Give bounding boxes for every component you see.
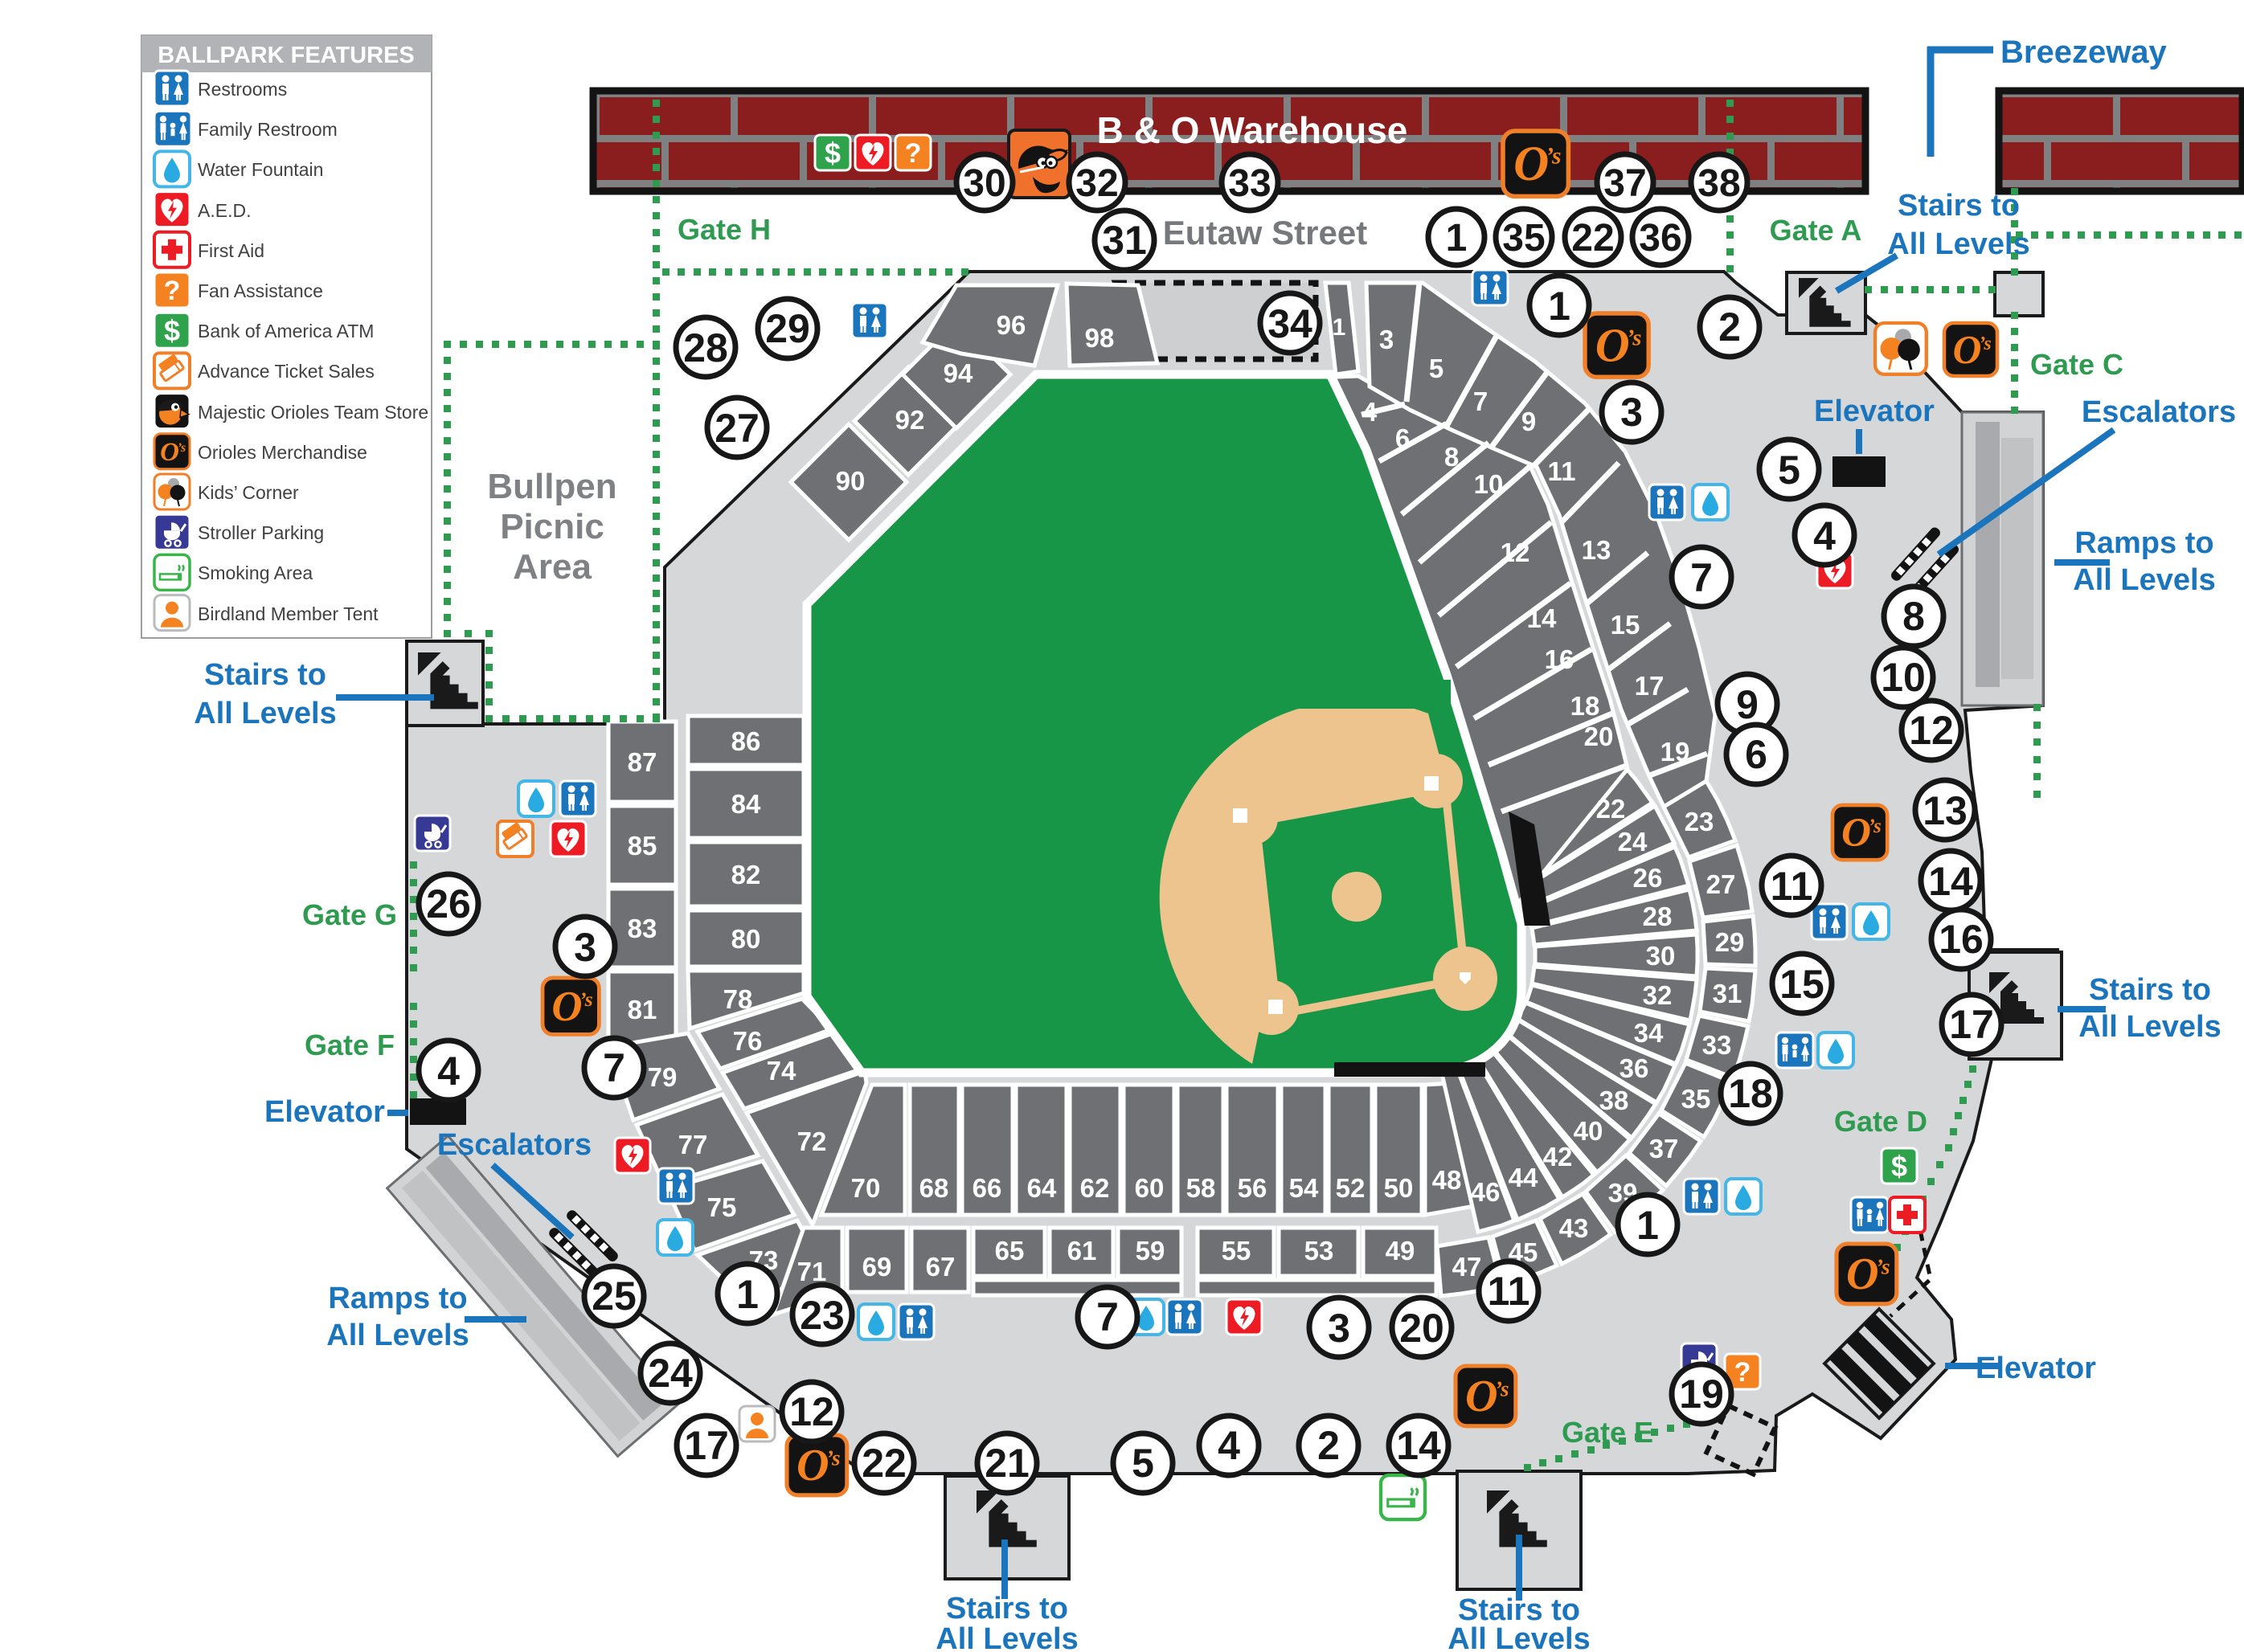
svg-text:All Levels: All Levels (2078, 1010, 2221, 1044)
svg-text:Kids’ Corner: Kids’ Corner (198, 482, 299, 503)
svg-text:31: 31 (1713, 979, 1742, 1008)
svg-text:8: 8 (1444, 442, 1459, 472)
svg-text:22: 22 (862, 1441, 907, 1486)
svg-text:84: 84 (731, 789, 761, 819)
svg-text:71: 71 (797, 1257, 827, 1286)
svg-text:15: 15 (1611, 610, 1640, 640)
svg-text:9: 9 (1736, 682, 1759, 727)
svg-text:80: 80 (731, 924, 761, 954)
svg-text:30: 30 (963, 162, 1005, 205)
svg-text:20: 20 (1399, 1306, 1444, 1351)
svg-text:1: 1 (1636, 1203, 1659, 1248)
svg-text:7: 7 (603, 1045, 625, 1090)
svg-text:2: 2 (1718, 305, 1741, 350)
svg-text:32: 32 (1643, 980, 1673, 1010)
svg-text:1: 1 (1333, 314, 1346, 341)
svg-text:22: 22 (1596, 794, 1626, 824)
svg-text:83: 83 (628, 914, 657, 943)
svg-text:7: 7 (1473, 386, 1488, 416)
svg-text:42: 42 (1543, 1142, 1573, 1172)
svg-text:3: 3 (1328, 1306, 1350, 1351)
svg-text:18: 18 (1570, 691, 1600, 721)
svg-text:2: 2 (1317, 1423, 1340, 1468)
svg-text:24: 24 (648, 1351, 693, 1396)
svg-text:Majestic Orioles Team Store: Majestic Orioles Team Store (198, 402, 428, 423)
svg-text:44: 44 (1509, 1163, 1538, 1192)
svg-text:Elevator: Elevator (264, 1095, 385, 1129)
svg-text:6: 6 (1745, 732, 1767, 777)
svg-text:Gate E: Gate E (1562, 1416, 1653, 1449)
svg-text:3: 3 (1620, 390, 1643, 435)
svg-text:94: 94 (944, 358, 973, 388)
svg-text:Gate C: Gate C (2030, 348, 2123, 381)
svg-text:23: 23 (1685, 807, 1714, 836)
svg-text:Restrooms: Restrooms (198, 79, 287, 100)
svg-text:96: 96 (997, 310, 1026, 340)
svg-text:47: 47 (1452, 1252, 1482, 1282)
svg-text:82: 82 (731, 860, 761, 889)
svg-text:74: 74 (767, 1056, 796, 1086)
svg-text:Gate D: Gate D (1834, 1105, 1927, 1138)
svg-text:All Levels: All Levels (194, 697, 336, 730)
svg-text:56: 56 (1238, 1173, 1267, 1203)
svg-text:Breezeway: Breezeway (2000, 35, 2168, 70)
svg-text:Orioles Merchandise: Orioles Merchandise (198, 442, 367, 463)
svg-text:Gate A: Gate A (1770, 214, 1862, 247)
svg-text:Elevator: Elevator (1814, 395, 1935, 428)
svg-text:28: 28 (683, 325, 728, 370)
svg-text:Stairs to: Stairs to (2089, 973, 2211, 1007)
svg-text:36: 36 (1620, 1053, 1649, 1083)
svg-text:Smoking Area: Smoking Area (198, 562, 313, 583)
svg-text:Bullpen: Bullpen (487, 467, 616, 506)
svg-text:7: 7 (1096, 1294, 1119, 1339)
svg-text:85: 85 (628, 831, 657, 861)
svg-text:Escalators: Escalators (437, 1128, 592, 1162)
svg-text:79: 79 (648, 1062, 678, 1092)
svg-text:1: 1 (1548, 284, 1570, 329)
svg-text:12: 12 (789, 1389, 834, 1434)
svg-text:37: 37 (1603, 162, 1646, 205)
svg-text:29: 29 (765, 306, 810, 351)
svg-text:Gate F: Gate F (305, 1028, 395, 1061)
svg-text:38: 38 (1697, 162, 1740, 205)
svg-text:18: 18 (1728, 1071, 1773, 1116)
svg-text:76: 76 (733, 1026, 763, 1056)
svg-text:First Aid: First Aid (198, 240, 264, 261)
svg-text:49: 49 (1386, 1236, 1415, 1266)
svg-text:68: 68 (919, 1173, 949, 1203)
svg-text:13: 13 (1582, 535, 1611, 565)
svg-text:All Levels: All Levels (2073, 563, 2215, 597)
svg-text:16: 16 (1939, 917, 1984, 962)
svg-text:34: 34 (1267, 301, 1312, 346)
svg-text:34: 34 (1634, 1018, 1664, 1048)
svg-text:4: 4 (437, 1049, 460, 1094)
svg-text:59: 59 (1136, 1236, 1165, 1266)
svg-text:Ramps to: Ramps to (2074, 526, 2213, 560)
svg-text:All Levels: All Levels (326, 1319, 469, 1352)
svg-text:20: 20 (1584, 722, 1614, 751)
svg-text:Gate H: Gate H (678, 213, 771, 246)
svg-text:15: 15 (1779, 962, 1824, 1007)
svg-text:55: 55 (1222, 1236, 1251, 1266)
svg-text:43: 43 (1559, 1213, 1589, 1243)
svg-text:50: 50 (1384, 1173, 1414, 1203)
svg-text:5: 5 (1778, 448, 1800, 493)
svg-text:64: 64 (1027, 1173, 1057, 1203)
svg-text:A.E.D.: A.E.D. (198, 200, 251, 221)
svg-text:87: 87 (628, 747, 657, 777)
svg-text:12: 12 (1501, 538, 1530, 567)
svg-text:7: 7 (1690, 555, 1713, 600)
svg-text:Family Restroom: Family Restroom (198, 119, 338, 140)
svg-text:27: 27 (1706, 869, 1736, 899)
svg-text:Birdland Member Tent: Birdland Member Tent (198, 603, 379, 624)
svg-text:6: 6 (1395, 423, 1410, 453)
svg-text:1: 1 (1446, 217, 1468, 260)
svg-text:32: 32 (1075, 162, 1118, 205)
svg-text:Ramps to: Ramps to (328, 1282, 467, 1315)
svg-text:54: 54 (1289, 1173, 1319, 1203)
svg-text:30: 30 (1646, 941, 1676, 971)
svg-text:36: 36 (1639, 217, 1681, 260)
svg-text:22: 22 (1571, 217, 1614, 260)
svg-text:11: 11 (1771, 864, 1813, 909)
svg-text:61: 61 (1067, 1236, 1097, 1266)
svg-text:70: 70 (851, 1173, 881, 1203)
svg-text:Escalators: Escalators (2082, 395, 2236, 429)
svg-text:33: 33 (1228, 162, 1271, 205)
svg-text:28: 28 (1643, 902, 1673, 931)
svg-text:Picnic: Picnic (500, 507, 604, 546)
svg-text:53: 53 (1304, 1236, 1334, 1266)
svg-text:40: 40 (1574, 1116, 1603, 1146)
svg-text:98: 98 (1085, 323, 1115, 353)
svg-text:19: 19 (1679, 1372, 1724, 1417)
svg-text:46: 46 (1471, 1177, 1501, 1207)
svg-text:33: 33 (1702, 1030, 1732, 1060)
svg-text:26: 26 (1633, 863, 1663, 893)
svg-text:Bank of America ATM: Bank of America ATM (198, 321, 374, 341)
svg-text:23: 23 (800, 1293, 845, 1338)
svg-text:19: 19 (1660, 737, 1690, 767)
svg-text:69: 69 (862, 1252, 892, 1282)
svg-text:9: 9 (1521, 407, 1536, 436)
svg-text:3: 3 (1379, 325, 1394, 354)
svg-text:11: 11 (1488, 1269, 1530, 1314)
svg-text:86: 86 (731, 726, 761, 756)
svg-text:31: 31 (1102, 218, 1147, 263)
svg-text:Stairs to: Stairs to (204, 658, 326, 692)
svg-text:BALLPARK FEATURES: BALLPARK FEATURES (158, 43, 415, 68)
svg-text:All Levels: All Levels (1887, 227, 2029, 261)
svg-text:All Levels: All Levels (936, 1622, 1078, 1652)
svg-text:Fan Assistance: Fan Assistance (198, 280, 323, 301)
svg-text:90: 90 (836, 466, 866, 496)
svg-text:77: 77 (678, 1130, 708, 1159)
svg-text:All Levels: All Levels (1448, 1622, 1590, 1652)
svg-text:8: 8 (1902, 594, 1925, 639)
svg-text:3: 3 (574, 925, 596, 970)
svg-text:48: 48 (1432, 1165, 1462, 1195)
svg-text:92: 92 (895, 405, 925, 435)
svg-text:14: 14 (1928, 859, 1973, 904)
svg-text:24: 24 (1618, 827, 1648, 857)
svg-text:60: 60 (1135, 1173, 1165, 1203)
svg-text:58: 58 (1186, 1173, 1216, 1203)
svg-text:5: 5 (1429, 354, 1443, 383)
svg-text:62: 62 (1080, 1173, 1110, 1203)
svg-text:16: 16 (1545, 644, 1574, 674)
svg-text:Area: Area (513, 547, 592, 587)
svg-text:1: 1 (736, 1272, 759, 1317)
svg-text:67: 67 (926, 1252, 956, 1282)
svg-text:27: 27 (715, 406, 760, 451)
svg-text:66: 66 (973, 1173, 1002, 1203)
svg-text:75: 75 (707, 1192, 737, 1222)
svg-text:Eutaw Street: Eutaw Street (1163, 214, 1367, 251)
svg-text:4: 4 (1813, 513, 1836, 558)
svg-text:B & O Warehouse: B & O Warehouse (1097, 109, 1408, 151)
svg-text:12: 12 (1909, 708, 1954, 753)
svg-text:29: 29 (1715, 927, 1745, 957)
svg-text:17: 17 (684, 1423, 729, 1468)
svg-text:72: 72 (797, 1127, 827, 1156)
svg-text:78: 78 (723, 984, 753, 1014)
svg-text:35: 35 (1502, 217, 1545, 260)
svg-text:4: 4 (1218, 1423, 1240, 1468)
svg-text:52: 52 (1336, 1173, 1366, 1203)
svg-text:10: 10 (1881, 655, 1926, 700)
svg-text:17: 17 (1949, 1002, 1994, 1047)
svg-text:4: 4 (1362, 397, 1378, 427)
svg-text:Stairs to: Stairs to (1898, 189, 2020, 223)
svg-text:37: 37 (1649, 1134, 1679, 1163)
svg-text:14: 14 (1527, 603, 1557, 633)
svg-text:21: 21 (985, 1441, 1030, 1486)
svg-text:11: 11 (1548, 456, 1576, 486)
svg-text:17: 17 (1635, 671, 1665, 701)
svg-text:26: 26 (426, 881, 471, 926)
svg-text:Water Fountain: Water Fountain (198, 159, 323, 180)
svg-text:5: 5 (1132, 1441, 1154, 1486)
svg-text:Gate G: Gate G (302, 898, 397, 931)
svg-text:25: 25 (592, 1274, 637, 1319)
svg-text:13: 13 (1923, 788, 1968, 833)
svg-text:35: 35 (1681, 1084, 1711, 1114)
svg-text:81: 81 (628, 995, 657, 1024)
svg-text:38: 38 (1599, 1086, 1629, 1115)
svg-text:Advance Ticket Sales: Advance Ticket Sales (198, 361, 375, 382)
svg-text:14: 14 (1396, 1423, 1441, 1468)
svg-text:Stroller Parking: Stroller Parking (198, 522, 324, 543)
svg-text:10: 10 (1474, 469, 1504, 499)
svg-text:65: 65 (995, 1236, 1025, 1266)
